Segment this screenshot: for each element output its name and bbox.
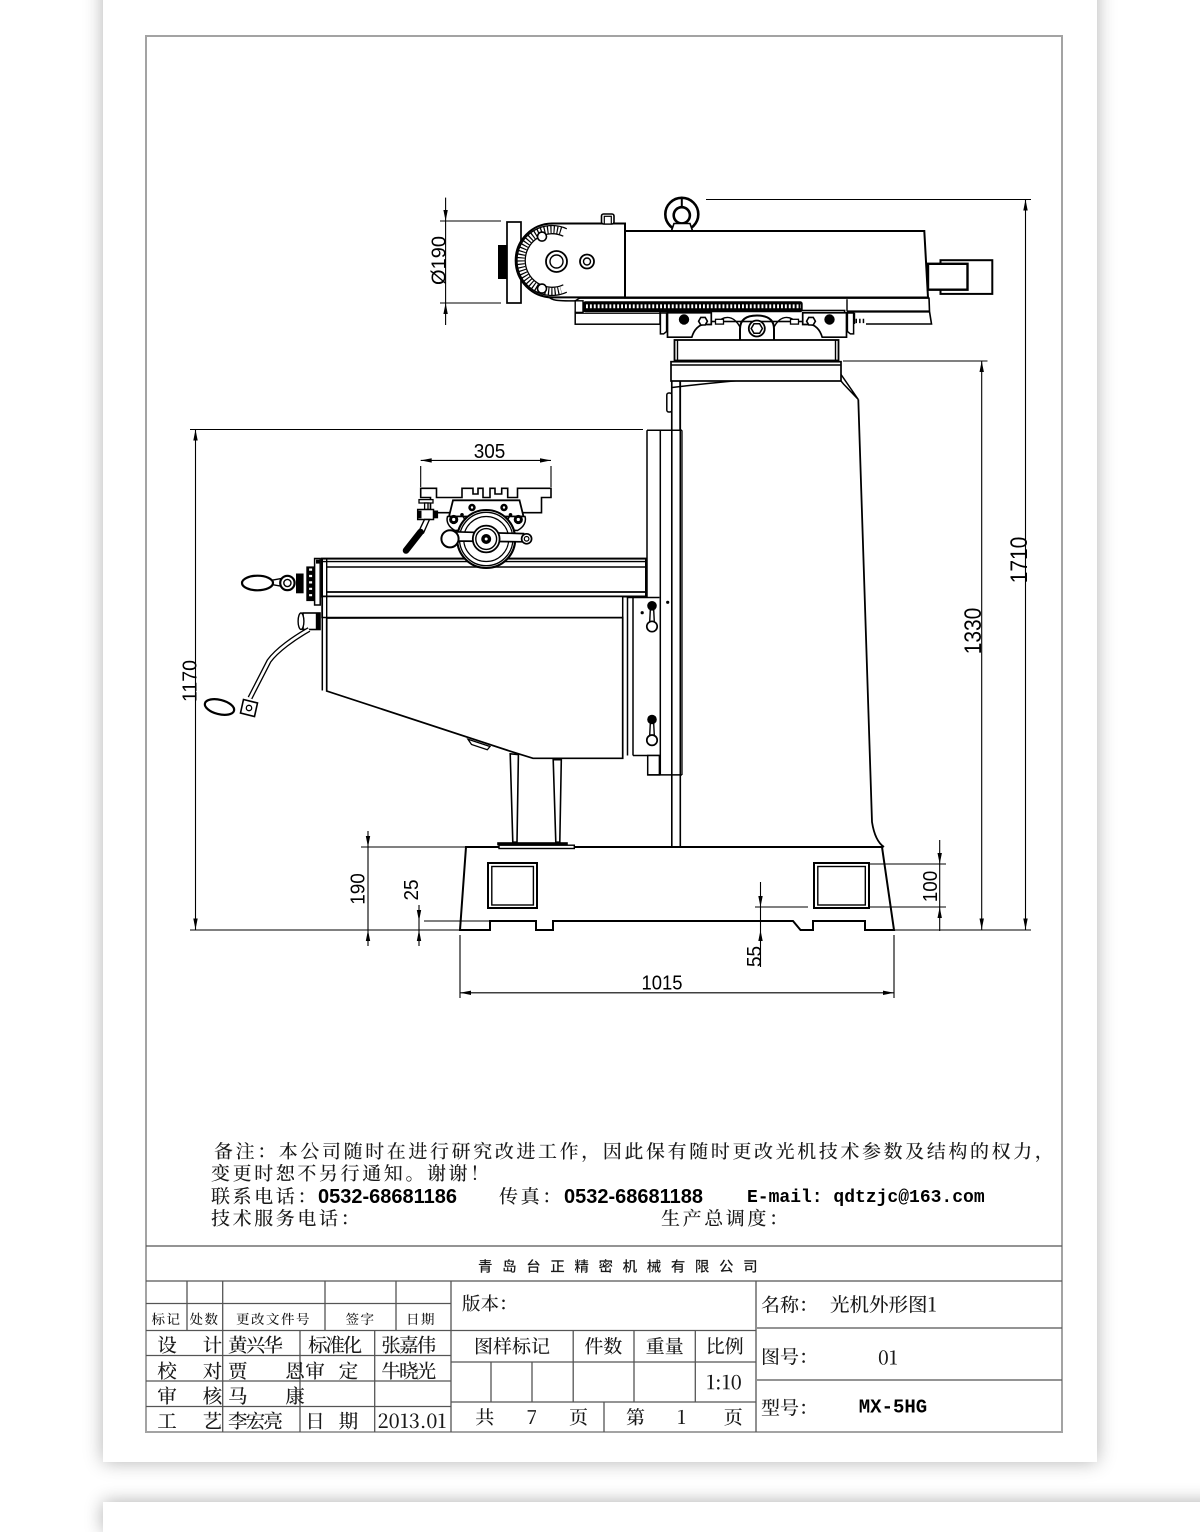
svg-text:E-mail: qdtzjc@163.com: E-mail: qdtzjc@163.com: [747, 1188, 985, 1208]
svg-text:1015: 1015: [642, 972, 683, 994]
svg-text:55: 55: [744, 946, 766, 967]
svg-text:MX-5HG: MX-5HG: [859, 1396, 927, 1418]
svg-text:1330: 1330: [960, 608, 987, 655]
svg-text:0532-68681186: 0532-68681186: [318, 1186, 457, 1208]
svg-text:25: 25: [401, 880, 423, 901]
svg-text:0532-68681188: 0532-68681188: [564, 1186, 703, 1208]
svg-text:1710: 1710: [1006, 537, 1033, 584]
svg-text:190: 190: [348, 873, 370, 905]
svg-text:Ø190: Ø190: [429, 236, 451, 285]
svg-text:100: 100: [920, 871, 942, 903]
svg-text:1170: 1170: [180, 660, 202, 702]
svg-text:305: 305: [474, 441, 506, 463]
